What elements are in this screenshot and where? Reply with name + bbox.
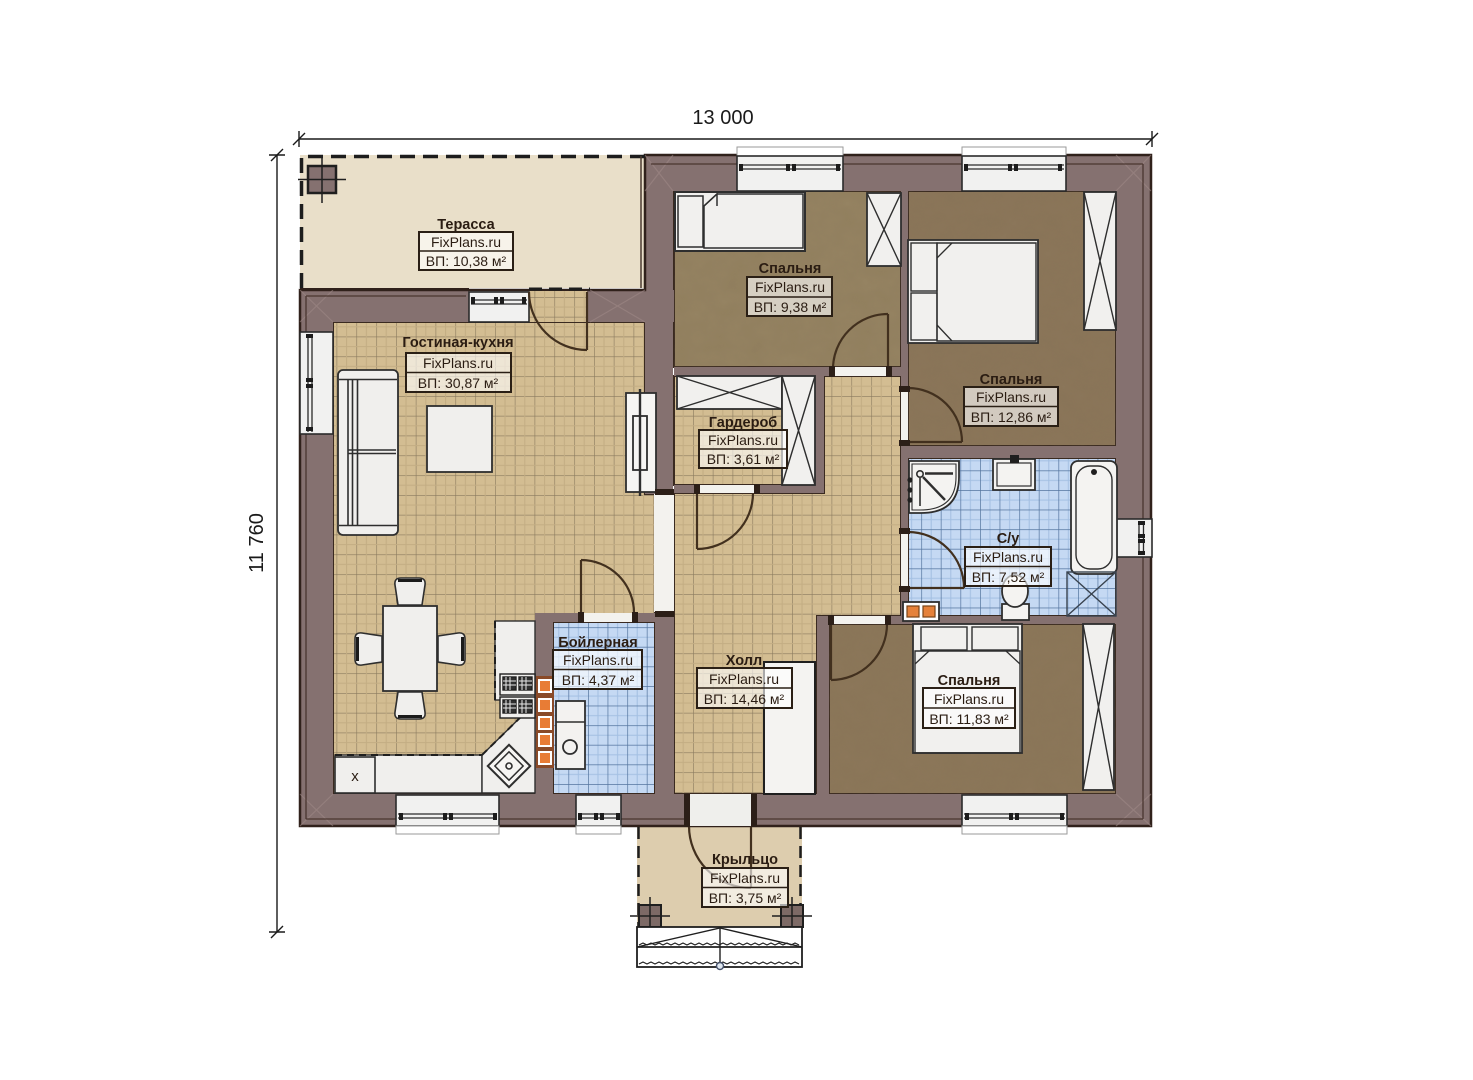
svg-text:Бойлерная: Бойлерная	[558, 635, 637, 651]
svg-text:Спальня: Спальня	[759, 261, 822, 277]
svg-text:ВП: 3,75 м²: ВП: 3,75 м²	[709, 890, 782, 906]
svg-text:FixPlans.ru: FixPlans.ru	[755, 279, 825, 295]
svg-text:FixPlans.ru: FixPlans.ru	[431, 234, 501, 250]
svg-text:FixPlans.ru: FixPlans.ru	[563, 652, 633, 668]
svg-text:ВП: 30,87 м²: ВП: 30,87 м²	[418, 375, 499, 391]
svg-text:ВП: 10,38 м²: ВП: 10,38 м²	[426, 253, 507, 269]
svg-text:FixPlans.ru: FixPlans.ru	[710, 870, 780, 886]
svg-text:FixPlans.ru: FixPlans.ru	[934, 691, 1004, 707]
svg-text:ВП: 9,38 м²: ВП: 9,38 м²	[754, 299, 827, 315]
svg-text:FixPlans.ru: FixPlans.ru	[976, 389, 1046, 405]
svg-text:FixPlans.ru: FixPlans.ru	[423, 355, 493, 371]
svg-text:Холл: Холл	[726, 653, 762, 669]
svg-text:Спальня: Спальня	[938, 673, 1001, 689]
svg-text:Гардероб: Гардероб	[709, 415, 778, 431]
svg-text:Крыльцо: Крыльцо	[712, 852, 778, 868]
svg-text:x: x	[351, 768, 359, 785]
svg-text:ВП: 4,37 м²: ВП: 4,37 м²	[562, 672, 635, 688]
svg-text:С/у: С/у	[997, 531, 1020, 547]
svg-text:FixPlans.ru: FixPlans.ru	[708, 432, 778, 448]
svg-text:Терасса: Терасса	[437, 217, 495, 233]
svg-text:ВП: 12,86 м²: ВП: 12,86 м²	[971, 409, 1052, 425]
svg-text:Гостиная-кухня: Гостиная-кухня	[402, 335, 513, 351]
svg-text:11 760: 11 760	[246, 513, 268, 573]
svg-text:Спальня: Спальня	[980, 372, 1043, 388]
svg-text:FixPlans.ru: FixPlans.ru	[973, 549, 1043, 565]
svg-text:ВП: 14,46 м²: ВП: 14,46 м²	[704, 691, 785, 707]
svg-text:ВП: 7,52 м²: ВП: 7,52 м²	[972, 569, 1045, 585]
svg-text:ВП: 3,61 м²: ВП: 3,61 м²	[707, 451, 780, 467]
svg-text:13 000: 13 000	[692, 107, 753, 129]
svg-text:FixPlans.ru: FixPlans.ru	[709, 671, 779, 687]
svg-text:ВП: 11,83 м²: ВП: 11,83 м²	[929, 711, 1009, 727]
